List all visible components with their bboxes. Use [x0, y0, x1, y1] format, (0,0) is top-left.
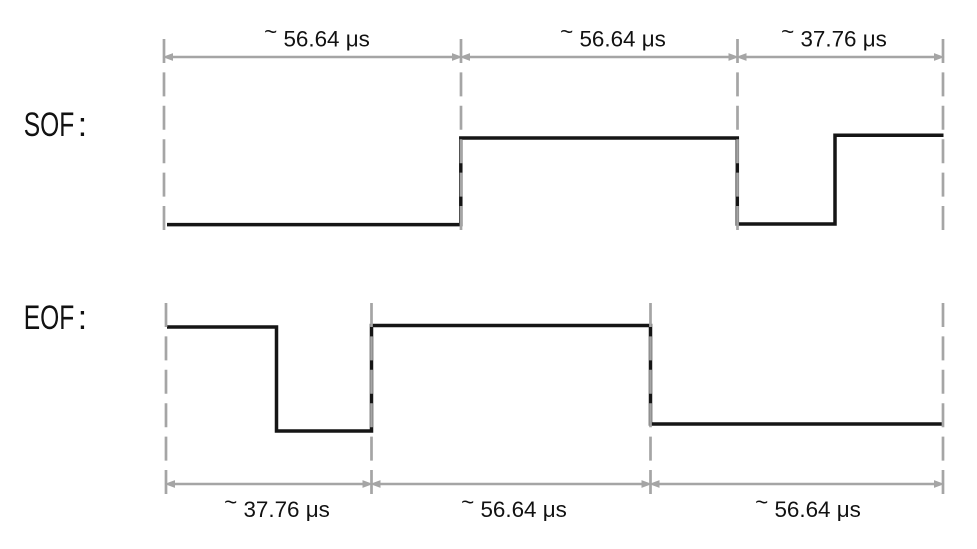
svg-text:EOF: EOF: [24, 299, 75, 337]
svg-text:~ 56.64 μs: ~ 56.64 μs: [264, 19, 370, 51]
svg-text:SOF: SOF: [24, 106, 75, 144]
svg-text:~ 56.64 μs: ~ 56.64 μs: [755, 490, 861, 522]
svg-text:~ 56.64 μs: ~ 56.64 μs: [461, 490, 567, 522]
svg-text::: :: [78, 106, 88, 144]
svg-text:~ 56.64 μs: ~ 56.64 μs: [560, 19, 666, 51]
svg-text:~ 37.76 μs: ~ 37.76 μs: [224, 490, 330, 522]
svg-text::: :: [78, 299, 88, 337]
svg-text:~ 37.76 μs: ~ 37.76 μs: [781, 19, 887, 51]
